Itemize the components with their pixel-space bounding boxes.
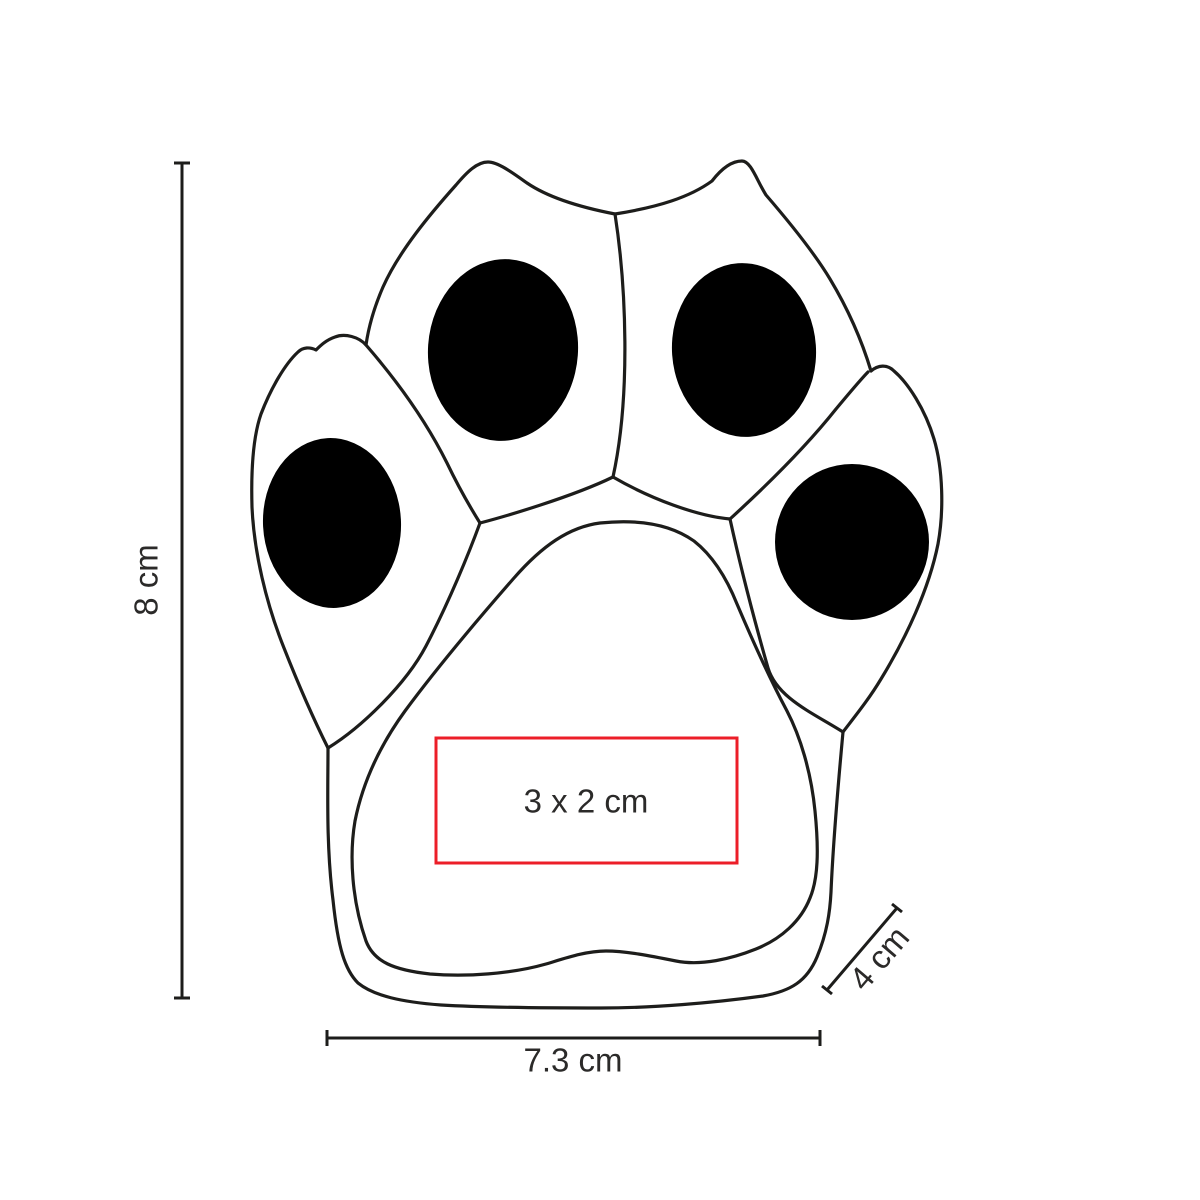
width-dimension: 7.3 cm [327, 1030, 820, 1079]
toe-pads [259, 254, 929, 620]
height-dimension-label: 8 cm [128, 544, 165, 616]
imprint-area: 3 x 2 cm [436, 738, 737, 863]
toe-pad-outer-right [775, 464, 929, 620]
depth-dimension: 4 cm [822, 904, 916, 997]
toe-pad-inner-right [666, 258, 822, 442]
toe-pad-inner-left [422, 254, 584, 446]
width-dimension-label: 7.3 cm [523, 1042, 622, 1079]
height-dimension: 8 cm [128, 163, 191, 998]
toe-pad-outer-left [259, 435, 406, 612]
diagram-svg: 3 x 2 cm 8 cm 7.3 cm 4 cm [0, 0, 1200, 1200]
toe-boundary-left-to-center [480, 477, 613, 523]
toe-boundary-center-to-right [613, 477, 730, 519]
imprint-area-label: 3 x 2 cm [524, 783, 649, 820]
toe-split-line-center [613, 214, 625, 477]
paw-dimension-diagram: 3 x 2 cm 8 cm 7.3 cm 4 cm [0, 0, 1200, 1200]
